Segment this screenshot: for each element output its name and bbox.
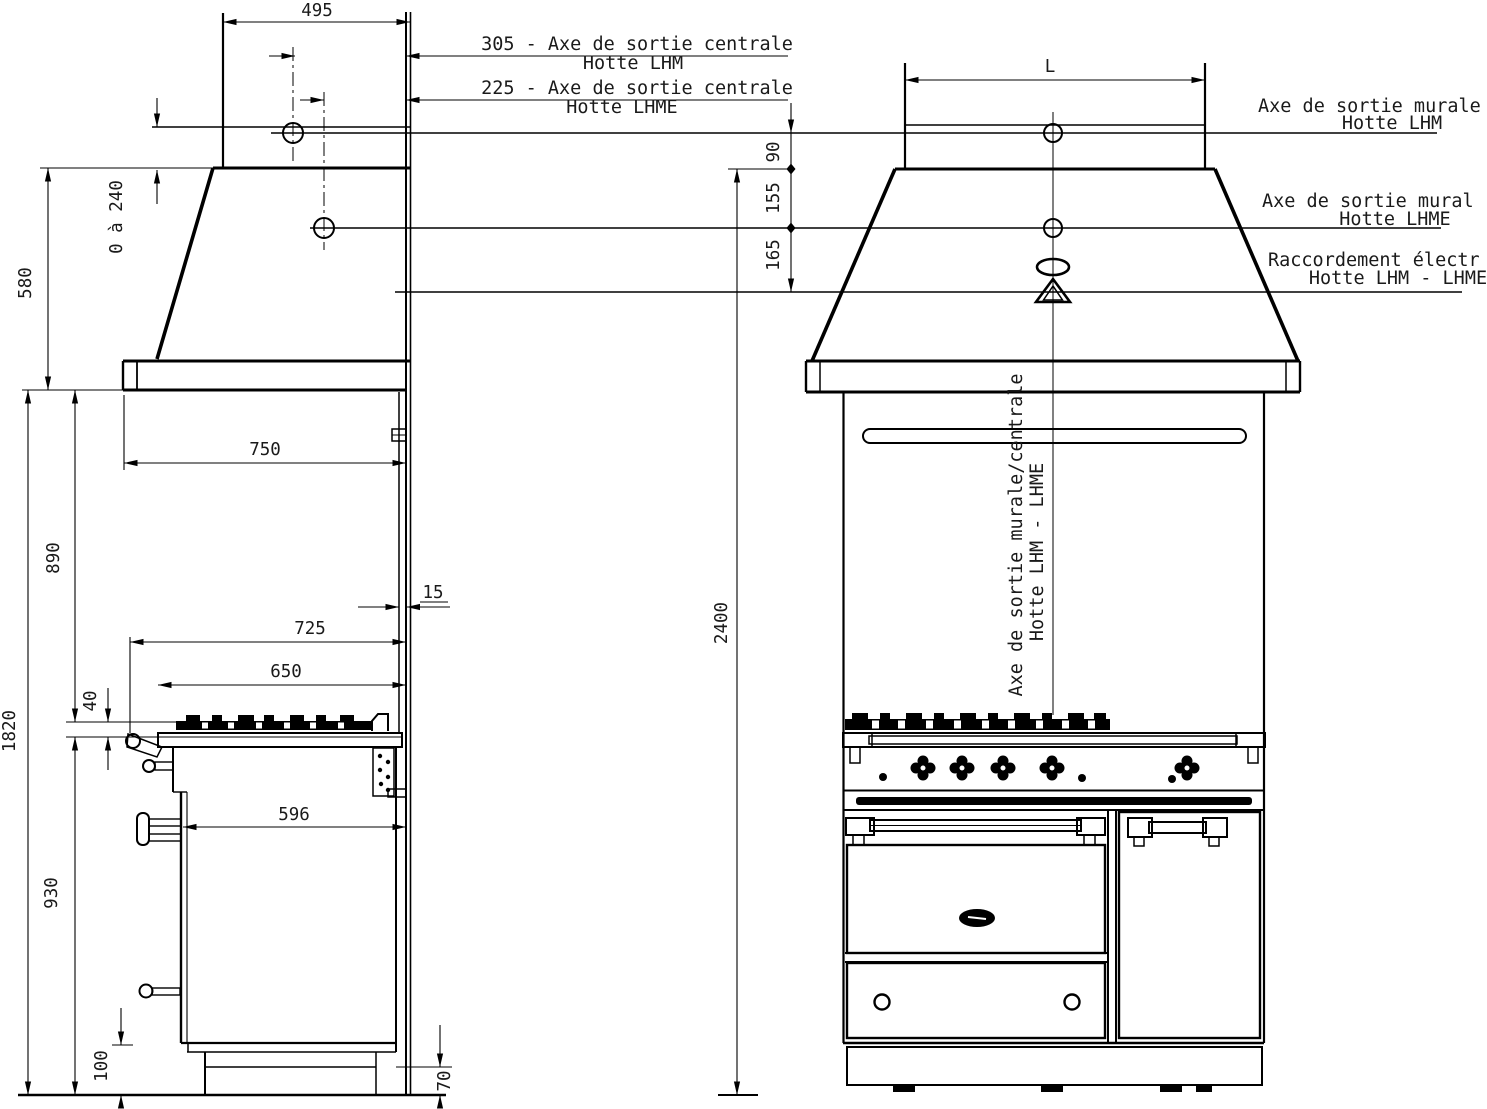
right-oven-door	[1119, 812, 1260, 1038]
technical-drawing-page: 495 305 - Axe de sortie centrale Hotte L…	[0, 0, 1487, 1109]
dim-90-label: 90	[764, 141, 784, 162]
canopy-slope-left	[812, 169, 895, 361]
dim-1820-label: 1820	[0, 710, 20, 752]
side-view-cooker	[126, 714, 406, 1095]
hob-grate-front	[845, 713, 1110, 730]
dim-750-label: 750	[249, 440, 281, 460]
dim-495-label: 495	[301, 1, 333, 21]
axe-centrale-lhm-label: 305 - Axe de sortie centrale	[481, 34, 793, 55]
igniter-button-1	[879, 773, 887, 781]
raccordement-label2: Hotte LHM - LHME	[1309, 268, 1487, 289]
installation-diagram: 495 305 - Axe de sortie centrale Hotte L…	[0, 0, 1487, 1109]
storage-drawer	[847, 963, 1105, 1038]
wall-line	[392, 12, 411, 1095]
oven-door-panel	[847, 845, 1105, 953]
worktop-side	[158, 733, 402, 747]
dim-580-label: 580	[16, 267, 36, 299]
hob-back-upstand	[372, 714, 388, 731]
control-panel	[843, 756, 1264, 791]
dim-725-label: 725	[294, 619, 326, 639]
dim-70-label: 70	[435, 1070, 455, 1091]
drawer-knob-left	[875, 995, 890, 1010]
axe-centrale-lhme-label: 225 - Axe de sortie centrale	[481, 78, 793, 99]
dim-0-240-label: 0 à 240	[107, 180, 127, 254]
dim-930-label: 930	[42, 877, 62, 909]
front-view-cooker	[843, 713, 1265, 1092]
dim-650-label: 650	[270, 662, 302, 682]
igniter-button-3	[1168, 775, 1176, 783]
dim-40-label: 40	[81, 690, 101, 711]
left-oven-door	[845, 818, 1108, 962]
control-knob-side	[143, 760, 155, 772]
plinth-front	[847, 1047, 1262, 1085]
axe-sortie-centre-label: Axe de sortie murale/centrale	[1006, 373, 1027, 696]
front-view-hood	[806, 63, 1300, 1043]
backsplash-rail	[863, 429, 1246, 443]
knob-1	[911, 756, 936, 781]
oven-door-handle-side	[137, 813, 149, 845]
knob-4	[1040, 756, 1065, 781]
axe-murale-lhm-label2: Hotte LHM	[1342, 113, 1442, 134]
dim-890-label: 890	[44, 542, 64, 574]
hood-canopy-slope	[157, 168, 213, 359]
knob-5	[1175, 756, 1200, 781]
dim-L-label: L	[1045, 57, 1056, 77]
axe-centrale-lhm-label2: Hotte LHM	[583, 53, 683, 74]
side-view-hood	[22, 13, 410, 733]
dim-165-label: 165	[764, 239, 784, 271]
worktop-front-rail	[843, 733, 1265, 747]
lower-knob-side	[140, 985, 153, 998]
drawer-knob-right	[1065, 995, 1080, 1010]
drawer-panel	[847, 963, 1105, 1038]
axe-sortie-centre-label2: Hotte LHM - LHME	[1027, 463, 1048, 641]
vent-strip	[856, 797, 1252, 805]
burner-knobs	[911, 756, 1200, 781]
right-door-handle	[1149, 822, 1206, 833]
axe-murale-lhme-label2: Hotte LHME	[1339, 209, 1450, 230]
dim-155-label: 155	[764, 182, 784, 214]
dim-100-label: 100	[92, 1050, 112, 1082]
axe-centrale-lhme-label2: Hotte LHME	[566, 97, 677, 118]
knob-2	[950, 756, 975, 781]
igniter-button-2	[1078, 774, 1086, 782]
dim-2400-label: 2400	[712, 602, 732, 644]
knob-3	[991, 756, 1016, 781]
dim-15-label: 15	[422, 583, 443, 603]
hob-grate-side	[176, 714, 388, 731]
dim-596-label: 596	[278, 805, 310, 825]
